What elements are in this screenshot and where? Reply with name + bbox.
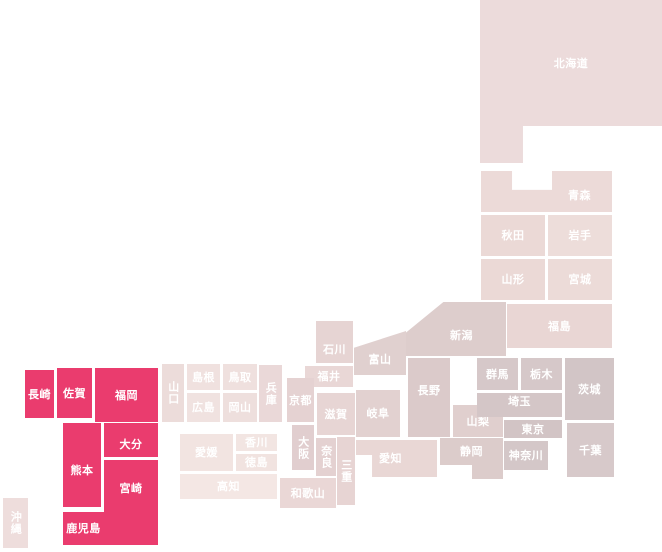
prefecture-tile-chiba[interactable]: 千葉 [567,423,614,477]
prefecture-label: 兵庫 [265,382,277,406]
prefecture-tile-toyama[interactable]: 富山 [354,331,406,375]
prefecture-label: 宮城 [569,274,592,285]
prefecture-tile-hokkaido[interactable]: 北海道 [480,0,662,163]
prefecture-tile-hyogo[interactable]: 兵庫 [259,365,282,422]
prefecture-tile-ehime[interactable]: 愛媛 [180,434,233,471]
prefecture-tile-okayama[interactable]: 岡山 [223,393,257,422]
prefecture-label: 福岡 [115,390,138,401]
prefecture-label: 福井 [318,371,341,382]
prefecture-label: 愛知 [379,453,402,464]
prefecture-label: 山形 [502,274,525,285]
prefecture-label: 広島 [192,402,215,413]
prefecture-label: 茨城 [578,384,601,395]
prefecture-label: 岐阜 [367,408,390,419]
prefecture-label: 高知 [217,481,240,492]
prefecture-tile-tottori[interactable]: 鳥取 [223,364,257,390]
prefecture-tile-yamagata[interactable]: 山形 [481,259,545,300]
prefecture-tile-kyoto[interactable]: 京都 [287,378,314,422]
prefecture-label: 新潟 [450,330,473,341]
prefecture-label: 神奈川 [509,450,544,461]
prefecture-tile-kanagawa[interactable]: 神奈川 [504,441,548,470]
prefecture-tile-nagano[interactable]: 長野 [408,358,450,437]
prefecture-tile-iwate[interactable]: 岩手 [548,215,612,256]
prefecture-label: 三重 [340,459,352,483]
prefecture-label: 岡山 [229,402,252,413]
prefecture-tile-akita[interactable]: 秋田 [481,215,545,256]
prefecture-tile-nagasaki[interactable]: 長崎 [25,370,54,418]
prefecture-tile-tochigi[interactable]: 栃木 [521,358,562,390]
prefecture-label: 静岡 [460,446,483,457]
prefecture-label: 秋田 [502,230,525,241]
prefecture-tile-miyagi[interactable]: 宮城 [548,259,612,300]
prefecture-label: 島根 [192,372,215,383]
prefecture-tile-kumamoto[interactable]: 熊本 [63,423,101,507]
prefecture-label: 千葉 [579,445,602,456]
prefecture-label: 京都 [289,395,312,406]
prefecture-tile-yamaguchi[interactable]: 山口 [162,364,184,422]
prefecture-label: 大分 [120,439,143,450]
prefecture-label: 福島 [548,321,571,332]
prefecture-tile-niigata[interactable]: 新潟 [405,302,506,356]
prefecture-tile-hiroshima[interactable]: 広島 [187,393,220,422]
japan-tile-map: 北海道青森秋田岩手山形宮城福島新潟富山石川福井長野山梨岐阜静岡愛知群馬栃木茨城埼… [0,0,662,552]
prefecture-label: 埼玉 [508,396,531,407]
prefecture-label: 宮崎 [120,483,143,494]
prefecture-label: 香川 [245,437,268,448]
prefecture-label: 山梨 [467,416,490,427]
prefecture-tile-wakayama[interactable]: 和歌山 [280,478,336,508]
prefecture-tile-saga[interactable]: 佐賀 [57,368,92,418]
prefecture-tile-okinawa[interactable]: 沖縄 [3,498,28,548]
prefecture-tile-tokyo[interactable]: 東京 [504,420,562,438]
prefecture-tile-osaka[interactable]: 大阪 [292,425,314,470]
prefecture-label: 奈良 [320,445,332,469]
prefecture-tile-fukuoka[interactable]: 福岡 [95,368,158,422]
prefecture-label: 愛媛 [195,447,218,458]
prefecture-label: 鹿児島 [66,523,101,534]
prefecture-label: 大阪 [297,436,309,460]
prefecture-label: 熊本 [71,465,94,476]
prefecture-label: 青森 [568,190,591,201]
prefecture-tile-ishikawa[interactable]: 石川 [316,321,353,363]
prefecture-label: 鳥取 [229,372,252,383]
prefecture-label: 石川 [323,344,346,355]
prefecture-tile-oita[interactable]: 大分 [104,423,158,457]
prefecture-label: 佐賀 [63,388,86,399]
prefecture-label: 群馬 [486,369,509,380]
prefecture-label: 和歌山 [291,488,326,499]
prefecture-label: 滋賀 [325,409,348,420]
prefecture-tile-mie[interactable]: 三重 [337,437,355,505]
prefecture-tile-aichi[interactable]: 愛知 [356,440,437,477]
prefecture-label: 徳島 [245,457,268,468]
prefecture-tile-kagawa[interactable]: 香川 [236,434,277,451]
prefecture-label: 富山 [369,354,392,365]
prefecture-tile-tokushima[interactable]: 徳島 [236,454,277,471]
prefecture-label: 北海道 [554,58,589,69]
prefecture-tile-saitama[interactable]: 埼玉 [477,393,562,417]
prefecture-label: 山口 [167,381,179,405]
prefecture-label: 沖縄 [10,511,22,535]
prefecture-tile-kochi[interactable]: 高知 [180,474,277,499]
prefecture-tile-shimane[interactable]: 島根 [187,364,220,390]
prefecture-tile-kagoshima[interactable]: 鹿児島 [63,512,158,545]
prefecture-label: 東京 [522,424,545,435]
prefecture-tile-miyazaki[interactable]: 宮崎 [104,460,158,517]
prefecture-tile-aomori[interactable]: 青森 [481,171,612,212]
prefecture-label: 長崎 [28,389,51,400]
prefecture-tile-gunma[interactable]: 群馬 [477,358,518,390]
prefecture-tile-nara[interactable]: 奈良 [316,438,336,476]
prefecture-label: 栃木 [530,369,553,380]
prefecture-tile-shiga[interactable]: 滋賀 [317,393,355,435]
prefecture-label: 長野 [418,385,441,396]
prefecture-tile-gifu[interactable]: 岐阜 [356,390,400,437]
prefecture-label: 岩手 [569,230,592,241]
prefecture-tile-shizuoka[interactable]: 静岡 [440,438,503,479]
prefecture-tile-fukushima[interactable]: 福島 [507,304,612,348]
prefecture-tile-ibaraki[interactable]: 茨城 [565,358,614,420]
